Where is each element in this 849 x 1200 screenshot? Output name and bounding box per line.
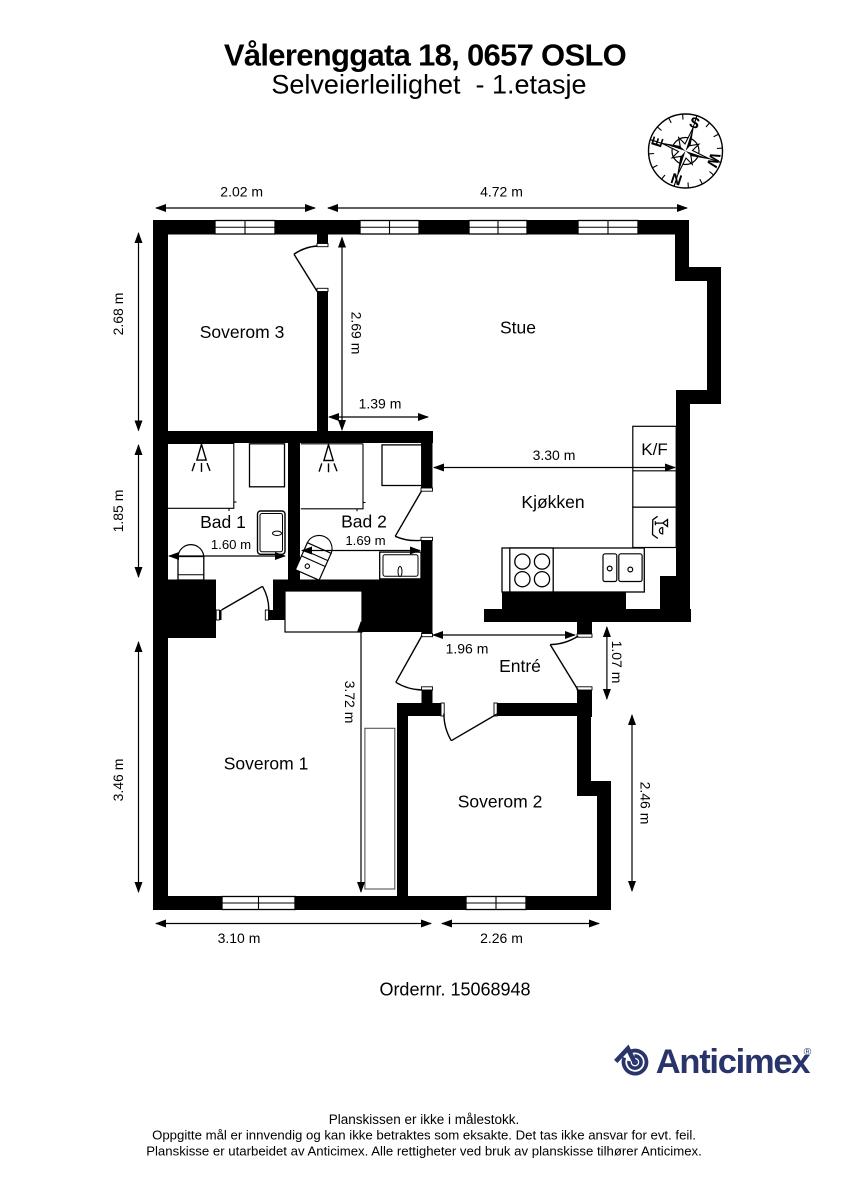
svg-text:Ordernr. 15068948: Ordernr. 15068948 [379,980,530,1000]
svg-text:4.72 m: 4.72 m [480,183,523,199]
svg-text:1.69 m: 1.69 m [345,533,385,548]
svg-text:Soverom 2: Soverom 2 [458,792,543,812]
svg-text:Entré: Entré [499,656,541,676]
svg-text:1.60 m: 1.60 m [211,537,251,552]
svg-text:Kjøkken: Kjøkken [521,492,584,512]
svg-text:3.72 m: 3.72 m [342,681,358,724]
svg-text:3.10 m: 3.10 m [218,930,261,946]
svg-text:Selveierleilighet - 1.etasje: Selveierleilighet - 1.etasje [271,70,586,100]
svg-text:Anticimex: Anticimex [656,1043,811,1081]
svg-text:3.30 m: 3.30 m [533,447,576,463]
svg-text:2.02 m: 2.02 m [220,183,263,199]
svg-text:1.85 m: 1.85 m [110,490,126,533]
svg-text:1.07 m: 1.07 m [609,641,625,684]
svg-text:Soverom 3: Soverom 3 [200,322,285,342]
svg-text:2.46 m: 2.46 m [638,782,654,825]
svg-text:1.96 m: 1.96 m [446,641,489,657]
svg-text:Bad 2: Bad 2 [341,512,387,532]
svg-text:Soverom 1: Soverom 1 [224,754,309,774]
svg-text:Bad 1: Bad 1 [200,512,246,532]
svg-text:K/F: K/F [641,440,667,459]
svg-text:2.69 m: 2.69 m [349,312,365,355]
svg-text:2.26 m: 2.26 m [480,930,523,946]
svg-text:Oppgitte mål er innvendig og k: Oppgitte mål er innvendig og kan ikke be… [152,1128,696,1143]
svg-text:Planskisse er utarbeidet av An: Planskisse er utarbeidet av Anticimex. A… [146,1144,702,1159]
svg-text:3.46 m: 3.46 m [110,759,126,802]
svg-text:Stue: Stue [500,318,536,338]
svg-text:®: ® [804,1047,812,1058]
svg-text:1.39 m: 1.39 m [359,396,402,412]
svg-text:Vålerenggata 18, 0657 OSLO: Vålerenggata 18, 0657 OSLO [224,38,626,73]
svg-text:2.68 m: 2.68 m [110,293,126,336]
svg-text:Planskissen er ikke i målestok: Planskissen er ikke i målestokk. [329,1112,520,1127]
